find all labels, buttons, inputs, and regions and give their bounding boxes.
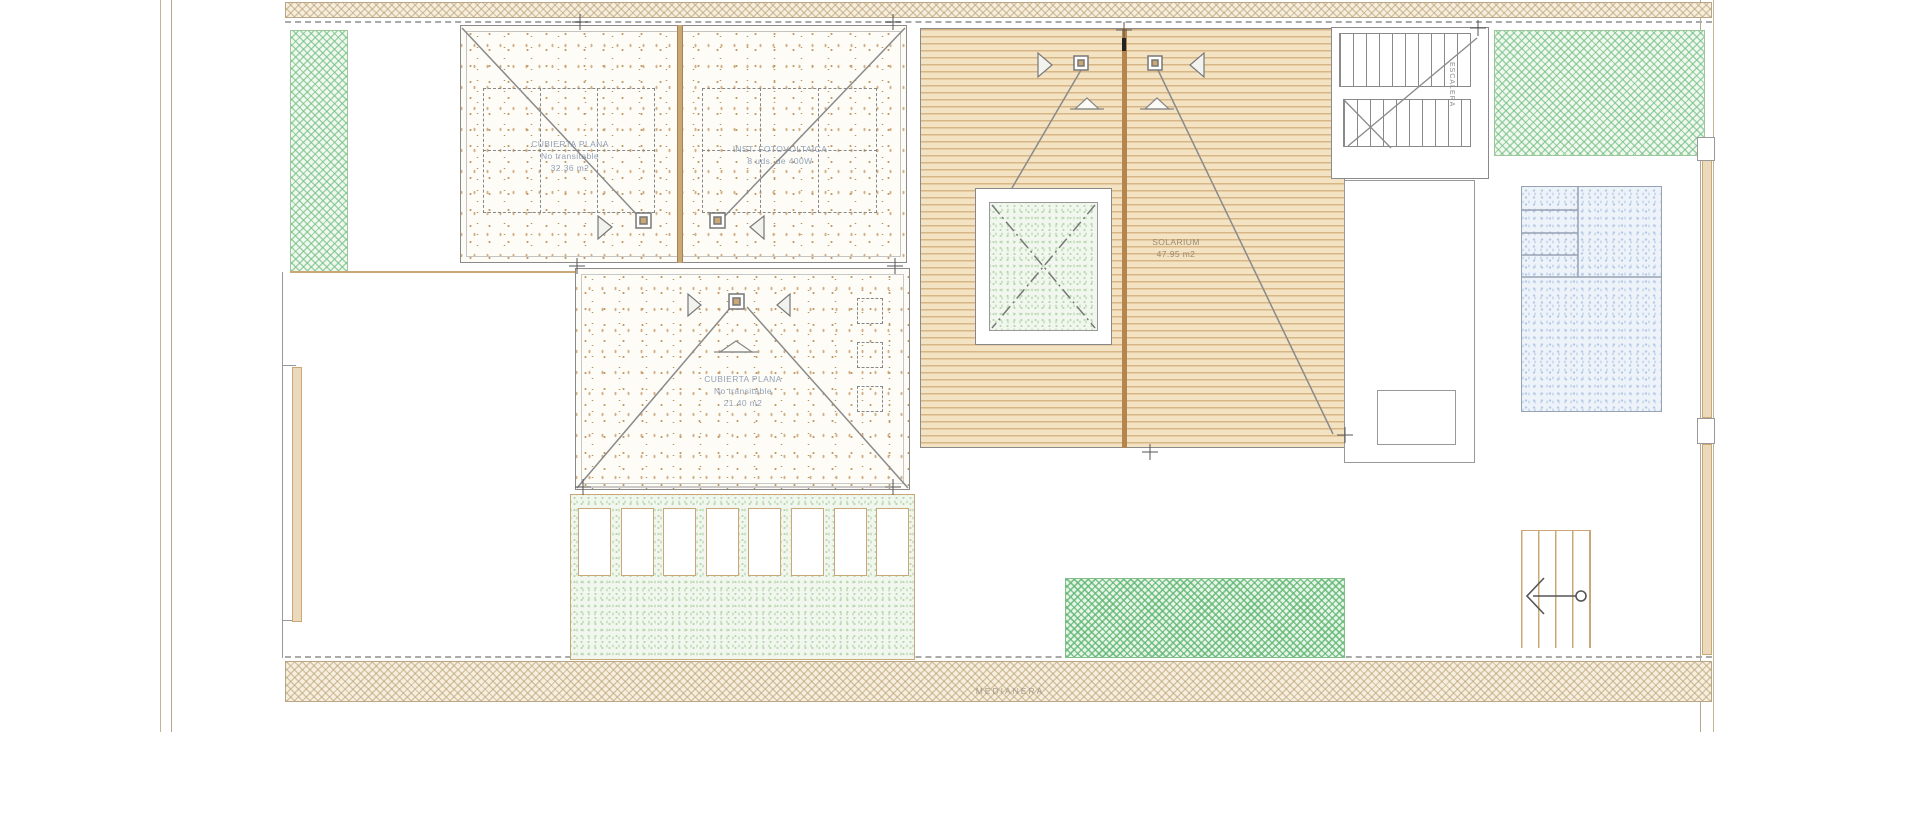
solarium-label: SOLARIUM 47.95 m2	[1128, 236, 1224, 260]
pergola-slat	[748, 508, 781, 576]
pergola-slat	[791, 508, 824, 576]
boundary-line-right-outer	[1713, 0, 1714, 732]
roof-flat-mid-area: 21.40 m2	[658, 397, 828, 409]
right-wall-lower	[1702, 444, 1712, 655]
pergola-slat	[621, 508, 654, 576]
exterior-stairs	[1521, 530, 1591, 648]
stair-label: ESCALERA	[1448, 62, 1455, 132]
pergola-slat	[834, 508, 867, 576]
right-wall-opening-lower	[1697, 418, 1715, 444]
party-wall-top	[285, 2, 1712, 18]
boundary-line-left-outer	[160, 0, 161, 732]
pergola-slat	[876, 508, 909, 576]
party-wall-top-dashed-line	[285, 21, 1712, 23]
pool	[1521, 186, 1662, 412]
left-wall-connector-top	[282, 365, 296, 366]
pergola-slat	[706, 508, 739, 576]
roof-pv-label: INST. FOTOVOLTAICA 8 uds. de 400W	[705, 143, 855, 167]
roof-vent-3	[857, 386, 883, 412]
roof-block-divider	[677, 25, 683, 263]
party-wall-bottom-dashed-line	[285, 656, 1712, 658]
roof-flat-left-note: No transitable	[495, 150, 645, 162]
roof-flat-mid-name: CUBIERTA PLANA	[658, 373, 828, 385]
right-wall-opening-upper	[1697, 137, 1715, 161]
roof-flat-mid-note: No transitable	[658, 385, 828, 397]
roof-vent-1	[857, 298, 883, 324]
skylight-glass	[989, 202, 1098, 331]
roof-plan-canvas: MEDIANERA CUBIERTA PLANA No transitable …	[0, 0, 1920, 837]
roof-pv-note: 8 uds. de 400W	[705, 155, 855, 167]
left-wall-line	[282, 272, 283, 658]
solarium-name: SOLARIUM	[1128, 236, 1224, 248]
roof-flat-left-name: CUBIERTA PLANA	[495, 138, 645, 150]
terrace-top-edge	[290, 271, 575, 273]
right-wall-upper	[1702, 160, 1712, 418]
party-wall-label: MEDIANERA	[950, 686, 1070, 696]
right-room-unit	[1377, 390, 1456, 445]
roof-flat-left-label: CUBIERTA PLANA No transitable 32.36 m2	[495, 138, 645, 174]
roof-pv-name: INST. FOTOVOLTAICA	[705, 143, 855, 155]
green-bed-bottom	[1065, 578, 1345, 658]
pergola-slat	[663, 508, 696, 576]
roof-flat-left-area: 32.36 m2	[495, 162, 645, 174]
green-band-right	[1494, 30, 1705, 156]
solarium-divider	[1122, 28, 1127, 448]
boundary-line-left-inner	[171, 0, 172, 732]
solarium-area: 47.95 m2	[1128, 248, 1224, 260]
left-wall-planter	[292, 367, 302, 622]
roof-vent-2	[857, 342, 883, 368]
pergola-slat	[578, 508, 611, 576]
roof-flat-mid-label: CUBIERTA PLANA No transitable 21.40 m2	[658, 373, 828, 409]
green-strip-left	[290, 30, 348, 272]
